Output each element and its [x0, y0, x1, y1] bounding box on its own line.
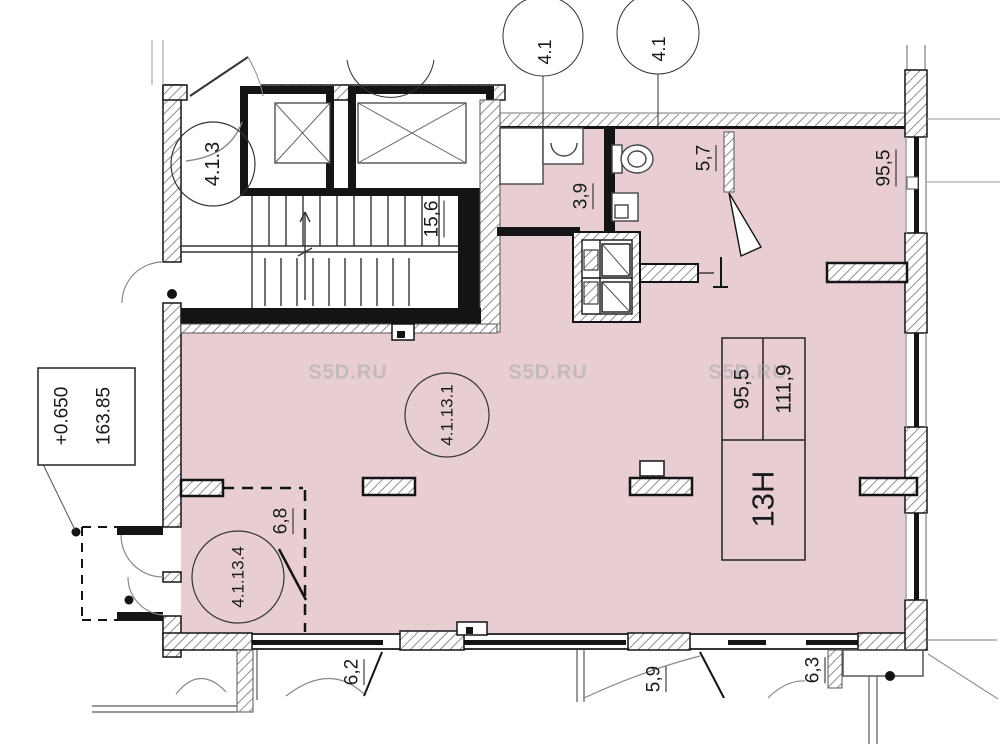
balcony-left-area-label: 6,2: [343, 659, 362, 685]
wc-area-label: 5,7: [695, 145, 714, 171]
axis-bubble-label: 4.1: [650, 36, 668, 61]
windows-right: [906, 119, 1000, 600]
balconies: [92, 640, 998, 744]
corner-room-id-label: 4.1.13.4: [230, 546, 247, 607]
unit-table-col1-label: 95,5: [732, 369, 753, 410]
shower-tray-icon: [500, 128, 543, 184]
axis-bubble-label: 4.1: [536, 39, 554, 64]
watermark: S5D.RU: [508, 362, 587, 385]
lobby-id-label: 4.1.3: [203, 142, 223, 186]
balcony-mid-area-label: 5,9: [645, 666, 664, 692]
corner-room-area-label: 6,8: [272, 508, 291, 534]
elevation-level-label: +0.650: [53, 387, 72, 446]
main-room-dim-label: 95,5: [875, 150, 894, 187]
floorplan-drawing: [0, 0, 1000, 750]
entry-porch: [40, 458, 163, 621]
elevation-mark-label: 163.85: [95, 387, 114, 445]
floor-plan: S5D.RU S5D.RU S5D.RU 4.1 4.1 4.1.3 15,6 …: [0, 0, 1000, 750]
basin-icon: [612, 193, 638, 221]
main-room-id-label: 4.1.13.1: [439, 384, 456, 445]
unit-table-col2-label: 111,9: [774, 364, 795, 413]
stairwell-area-label: 15,6: [423, 201, 442, 238]
unit-number-label: 13Н: [748, 471, 779, 528]
watermark: S5D.RU: [308, 362, 387, 385]
elevator-shafts: [244, 90, 490, 196]
balcony-right-area-label: 6,3: [804, 657, 823, 683]
bathroom-area-label: 3,9: [572, 183, 591, 209]
